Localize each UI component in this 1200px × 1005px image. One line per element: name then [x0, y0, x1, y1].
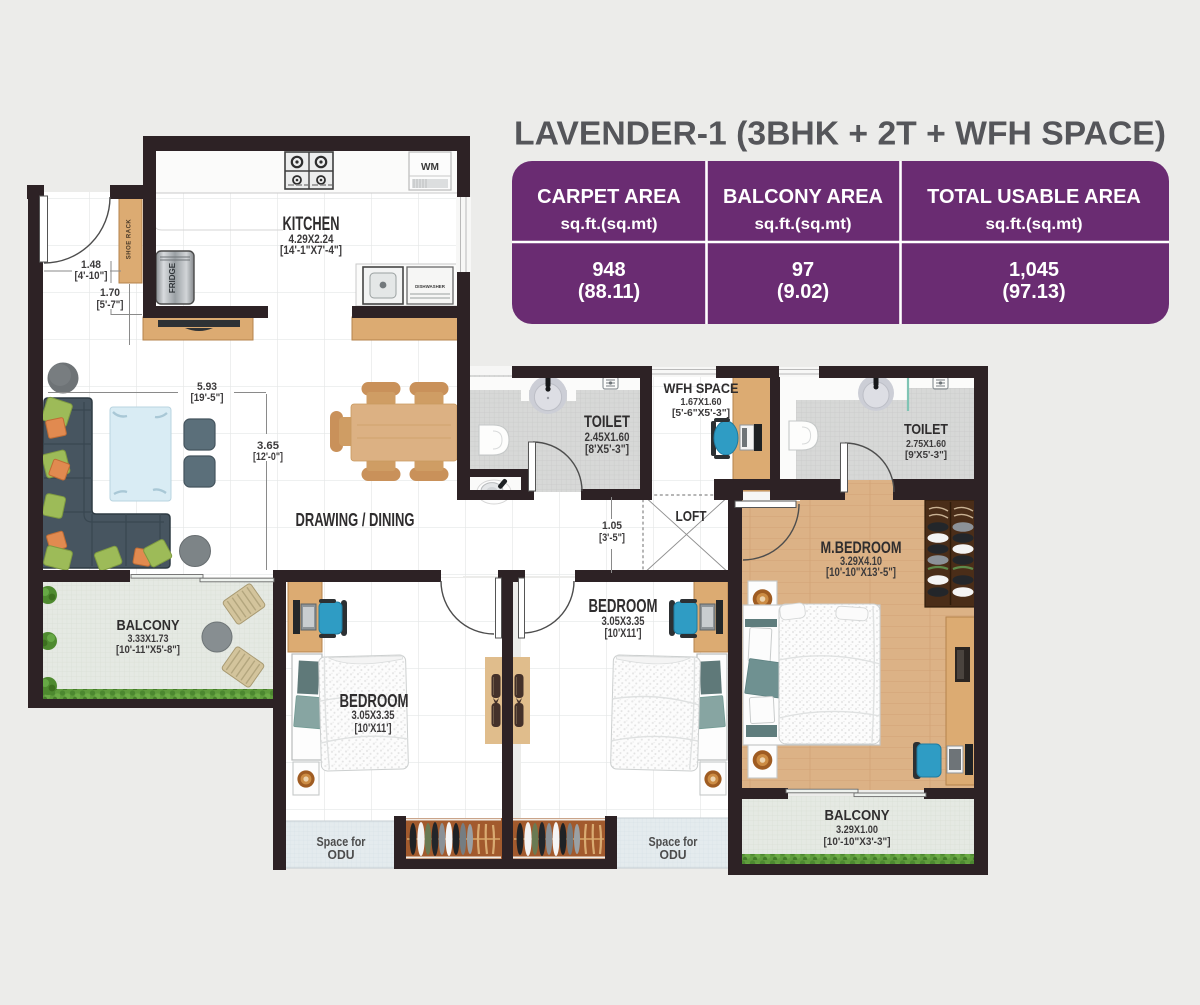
svg-text:sq.ft.(sq.mt): sq.ft.(sq.mt): [986, 216, 1083, 233]
svg-text:sq.ft.(sq.mt): sq.ft.(sq.mt): [755, 216, 852, 233]
svg-text:FRIDGE: FRIDGE: [168, 262, 177, 293]
svg-text:LAVENDER-1 (3BHK + 2T + WFH S: LAVENDER-1 (3BHK + 2T + WFH SPACE): [514, 115, 1166, 152]
svg-text:CARPET AREA: CARPET AREA: [537, 186, 681, 208]
svg-text:948: 948: [592, 259, 625, 281]
svg-text:[5'-7"]: [5'-7"]: [97, 299, 124, 311]
svg-text:BALCONY AREA: BALCONY AREA: [723, 186, 883, 208]
svg-text:BALCONY: BALCONY: [117, 618, 180, 634]
svg-text:[9'X5'-3"]: [9'X5'-3"]: [905, 449, 947, 461]
svg-text:[10'-10"X13'-5"]: [10'-10"X13'-5"]: [826, 565, 896, 579]
svg-text:Space for: Space for: [317, 835, 366, 849]
svg-text:97: 97: [792, 259, 814, 281]
svg-text:[5'-6"X5'-3"]: [5'-6"X5'-3"]: [672, 407, 730, 419]
svg-text:1.05: 1.05: [602, 520, 622, 532]
svg-text:(97.13): (97.13): [1002, 281, 1065, 303]
svg-text:LOFT: LOFT: [676, 508, 707, 525]
svg-text:BEDROOM: BEDROOM: [340, 691, 409, 711]
svg-text:ODU: ODU: [328, 848, 355, 862]
svg-text:TOTAL USABLE AREA: TOTAL USABLE AREA: [927, 186, 1141, 208]
svg-text:[8'X5'-3"]: [8'X5'-3"]: [585, 442, 629, 456]
svg-text:Space for: Space for: [649, 835, 698, 849]
svg-text:3.29X1.00: 3.29X1.00: [836, 824, 878, 836]
svg-text:[12'-0"]: [12'-0"]: [253, 451, 283, 463]
svg-text:BALCONY: BALCONY: [825, 808, 890, 824]
svg-text:BEDROOM: BEDROOM: [589, 596, 658, 616]
svg-text:3.05X3.35: 3.05X3.35: [352, 710, 395, 722]
svg-text:[10'X11']: [10'X11']: [355, 723, 392, 735]
svg-text:[10'-11"X5'-8"]: [10'-11"X5'-8"]: [116, 644, 180, 656]
svg-text:[10'-10"X3'-3"]: [10'-10"X3'-3"]: [824, 836, 891, 848]
svg-text:WM: WM: [421, 162, 439, 173]
svg-text:[4'-10"]: [4'-10"]: [75, 270, 108, 282]
svg-text:DISHWASHER: DISHWASHER: [415, 284, 446, 289]
svg-text:(88.11): (88.11): [578, 281, 640, 303]
svg-text:[14'-1"X7'-4"]: [14'-1"X7'-4"]: [280, 243, 342, 257]
svg-text:ODU: ODU: [660, 848, 687, 862]
svg-text:TOILET: TOILET: [584, 413, 630, 431]
svg-text:1.70: 1.70: [100, 287, 120, 299]
svg-text:DRAWING / DINING: DRAWING / DINING: [296, 510, 415, 530]
svg-text:1,045: 1,045: [1009, 259, 1059, 281]
svg-text:[3'-5"]: [3'-5"]: [599, 532, 625, 544]
svg-text:WFH SPACE: WFH SPACE: [664, 380, 739, 396]
svg-text:[10'X11']: [10'X11']: [605, 628, 642, 640]
svg-text:(9.02): (9.02): [777, 281, 829, 303]
svg-text:sq.ft.(sq.mt): sq.ft.(sq.mt): [561, 216, 658, 233]
svg-text:[19'-5"]: [19'-5"]: [191, 392, 224, 404]
svg-text:3.05X3.35: 3.05X3.35: [602, 616, 645, 628]
svg-text:SHOE RACK: SHOE RACK: [127, 219, 133, 260]
svg-text:TOILET: TOILET: [904, 421, 948, 438]
